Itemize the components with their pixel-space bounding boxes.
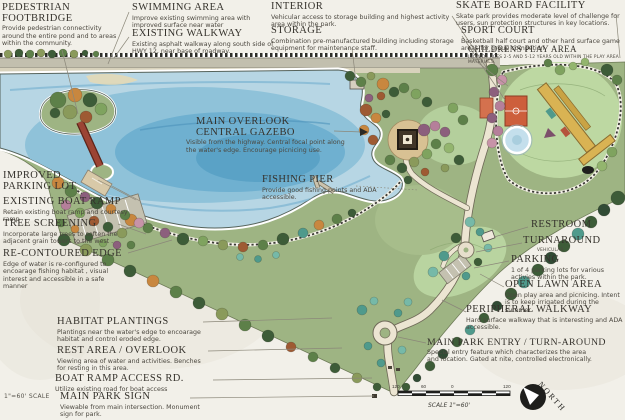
label-main-park-entry: MAIN PARK ENTRY / TURN-AROUND Special en… — [427, 338, 623, 364]
tree — [237, 254, 244, 261]
tree — [370, 297, 378, 305]
tree — [399, 83, 409, 93]
tree — [277, 233, 289, 245]
label-rest-area-overlook: REST AREA / OVERLOOK Viewing area of wat… — [57, 346, 209, 373]
tree — [160, 228, 170, 238]
tree — [48, 50, 56, 58]
tree — [454, 155, 464, 165]
park-master-plan: PEDESTRIAN FOOTBRIDGE Provide pedestrian… — [0, 0, 625, 420]
tree — [356, 77, 366, 87]
entry-roundabout — [373, 321, 397, 345]
label-childrens-play-area: CHILDRENS PLAY AREA INCLUDE AGES 2-5 AND… — [468, 45, 624, 65]
tree — [360, 104, 372, 116]
tree — [598, 204, 610, 216]
tree — [15, 49, 23, 57]
label-habitat-plantings: HABITAT PLANTINGS Plantings near the wat… — [57, 317, 207, 344]
tree — [262, 330, 274, 342]
tree — [170, 286, 182, 298]
scale-note: 1"=60' SCALE — [4, 393, 50, 400]
tree — [127, 241, 135, 249]
tree — [431, 139, 441, 149]
tree — [421, 168, 429, 176]
tree — [26, 50, 34, 58]
tree — [430, 121, 440, 131]
tree — [357, 305, 367, 315]
tree — [368, 135, 378, 145]
tree — [314, 220, 324, 230]
tree — [404, 298, 412, 306]
tree — [497, 75, 507, 85]
label-main-overlook: MAIN OVERLOOK CENTRAL GAZEBO Visible fro… — [186, 117, 346, 154]
label-re-contoured-edge: RE-CONTOURED EDGE Edge of water is re-co… — [3, 249, 129, 290]
scale-tick-label: 120 — [392, 384, 400, 389]
scale-bar-segment — [468, 393, 482, 395]
tree — [4, 50, 12, 58]
tree — [495, 101, 505, 111]
tree — [440, 127, 450, 137]
label-swimming-area: SWIMMING AREA Improve existing swimming … — [132, 3, 274, 30]
tree — [365, 94, 373, 102]
tree — [439, 251, 449, 261]
scale-tick-label: 60 — [421, 384, 426, 389]
tree — [134, 218, 144, 228]
label-improved-parking-lot: IMPROVED PARKING LOT — [3, 171, 103, 192]
tree — [377, 92, 385, 100]
tree — [462, 272, 470, 280]
tree — [555, 65, 565, 75]
label-turnaround: TURNAROUND VEHICULAR — [523, 236, 623, 253]
tree — [601, 64, 613, 76]
tree — [177, 233, 189, 245]
label-existing-walkway: EXISTING WALKWAY Existing asphalt walkwa… — [132, 29, 280, 56]
label-peripheral-walkway: PERIPHERAL WALKWAY Hard surface walkway … — [466, 305, 624, 332]
tree — [484, 244, 492, 252]
tree — [63, 105, 77, 119]
scale-bar-segment — [496, 393, 510, 395]
tree — [258, 240, 268, 250]
tree — [50, 108, 60, 118]
scale-bar-segment — [440, 393, 454, 395]
tree — [82, 50, 88, 56]
tree — [402, 383, 410, 391]
tree — [611, 191, 625, 205]
tree — [422, 149, 432, 159]
tree — [50, 92, 66, 108]
label-restroom: RESTROOM — [531, 220, 621, 231]
tree — [413, 374, 421, 382]
tree — [193, 297, 205, 309]
tree — [298, 228, 308, 238]
tree — [93, 51, 99, 57]
graphic-scale-bar — [398, 391, 510, 396]
tree — [418, 124, 430, 136]
tree — [451, 233, 461, 243]
tree — [441, 164, 449, 172]
tree — [382, 110, 390, 118]
tree — [385, 155, 395, 165]
tree — [373, 383, 381, 391]
tree — [448, 103, 458, 113]
tree — [330, 363, 340, 373]
label-main-park-sign: MAIN PARK SIGN Viewable from main inters… — [60, 392, 210, 419]
tree — [377, 78, 389, 90]
tree — [487, 113, 497, 123]
tree — [404, 176, 412, 184]
scale-bar-segment — [398, 391, 412, 393]
tree — [80, 111, 92, 123]
tree — [143, 223, 153, 233]
tree — [198, 236, 208, 246]
tree — [597, 161, 607, 171]
scale-bar-segment — [454, 391, 468, 393]
tree — [409, 157, 419, 167]
tree — [364, 342, 372, 350]
label-pedestrian-footbridge: PEDESTRIAN FOOTBRIDGE Provide pedestrian… — [2, 3, 122, 48]
label-skate-board-facility: SKATE BOARD FACILITY Skate park provides… — [456, 1, 624, 28]
tree — [411, 89, 421, 99]
tree — [474, 258, 482, 266]
tree — [238, 242, 248, 252]
tree — [612, 75, 622, 85]
scale-bar-caption: SCALE 1"=60' — [428, 402, 470, 409]
label-body: Provide pedestrian connectivity around t… — [2, 25, 122, 47]
tree — [377, 359, 385, 367]
tree — [216, 308, 228, 320]
label-tree-screening: TREE SCREENING Incorporate large trees t… — [3, 219, 125, 246]
label-parking: PARKING 1 of 4 parking lots for various … — [511, 255, 623, 282]
vehicular-turnaround — [458, 242, 474, 258]
scale-bar-segment — [426, 391, 440, 393]
tree — [428, 267, 438, 277]
label-title: PEDESTRIAN FOOTBRIDGE — [2, 3, 122, 24]
scale-bar-segment — [412, 393, 426, 395]
tree — [398, 346, 406, 354]
tree — [308, 352, 318, 362]
tree — [493, 126, 503, 136]
tree — [286, 342, 296, 352]
tree — [95, 103, 107, 115]
tree — [273, 252, 280, 259]
tree — [332, 214, 342, 224]
tree — [394, 309, 402, 317]
tree — [37, 49, 45, 57]
tree — [367, 72, 375, 80]
tree — [70, 50, 78, 58]
tree — [465, 217, 475, 227]
tree — [68, 88, 82, 102]
tree — [348, 209, 356, 217]
scale-bar-segment — [482, 391, 496, 393]
tree — [476, 228, 484, 236]
tree — [83, 93, 97, 107]
tree — [218, 240, 228, 250]
scale-tick-label: 0 — [451, 384, 454, 389]
tree — [422, 97, 432, 107]
tree — [371, 113, 381, 123]
label-storage: STORAGE Combination pre-manufactured bui… — [271, 26, 463, 53]
tree — [345, 71, 355, 81]
tree — [607, 147, 617, 157]
scale-tick-label: 120 — [503, 384, 511, 389]
tree — [255, 256, 262, 263]
tree — [389, 87, 399, 97]
tree — [458, 115, 468, 125]
label-fishing-pier: FISHING PIER Provide good fishing points… — [262, 175, 380, 202]
tree — [444, 143, 454, 153]
tree — [487, 138, 497, 148]
splash-pool — [502, 125, 532, 155]
tree — [147, 275, 159, 287]
tree — [397, 163, 407, 173]
